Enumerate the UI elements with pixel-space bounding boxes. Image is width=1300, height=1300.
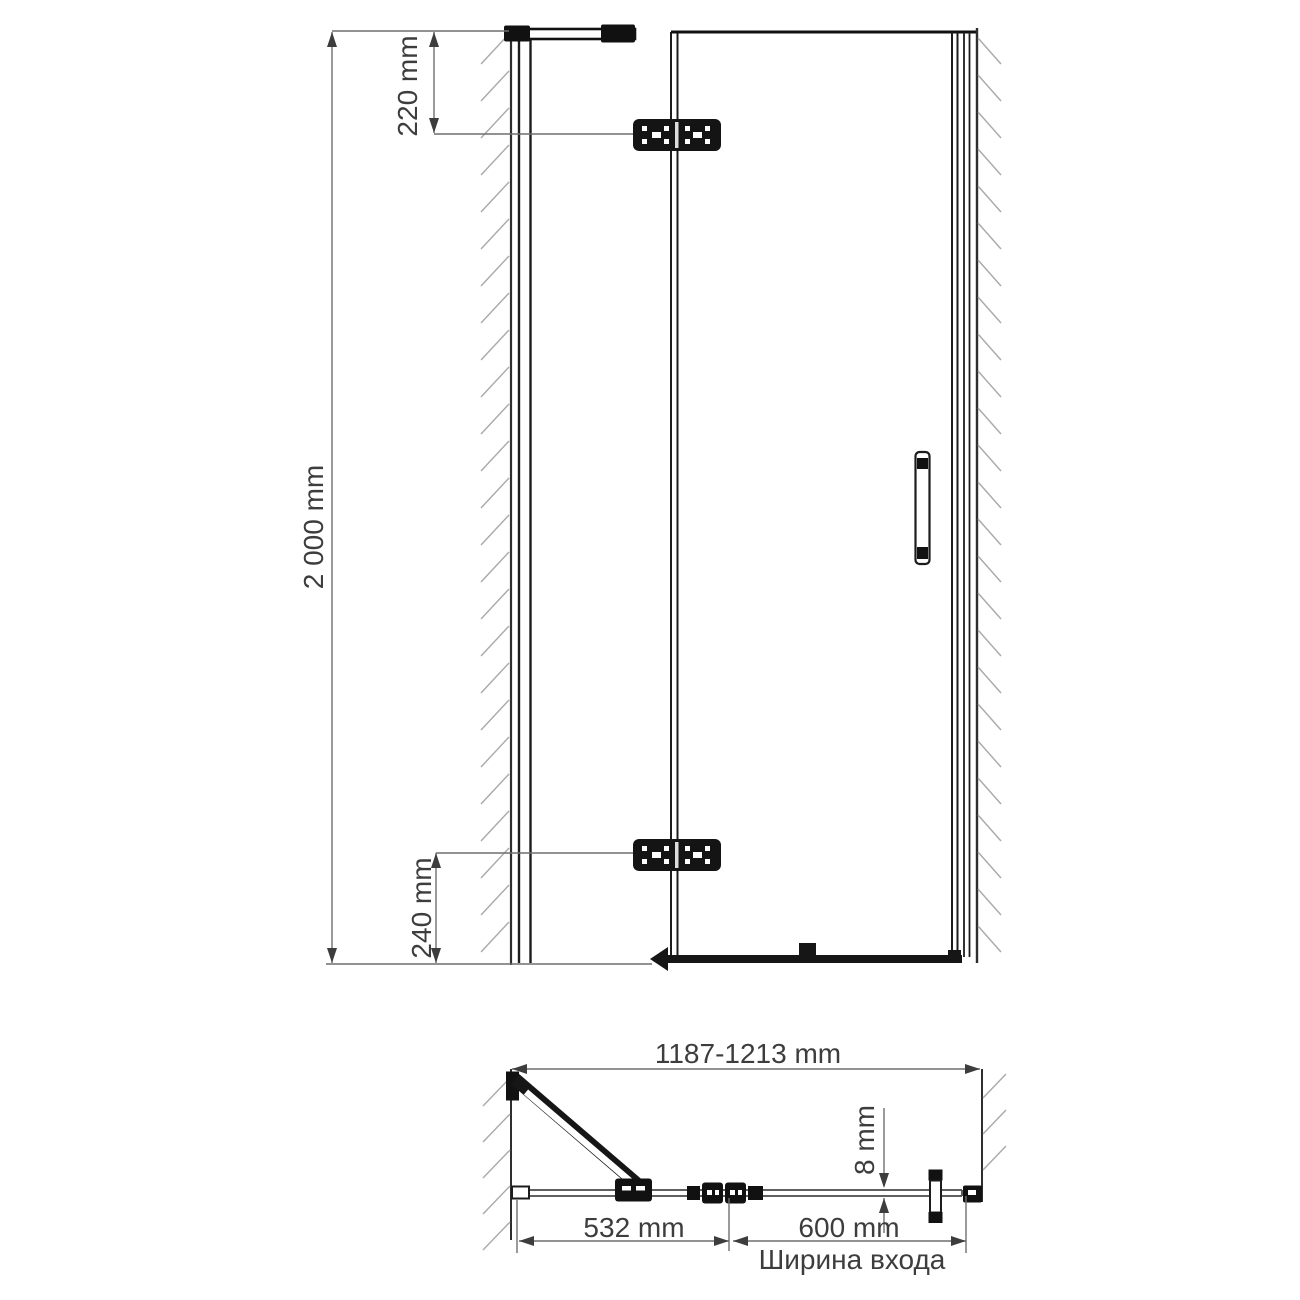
bottom-hinge-offset-label: 240 mm	[406, 857, 437, 958]
fixed-panel-wall-profile	[519, 30, 531, 963]
fixed-panel-width-label: 532 mm	[583, 1212, 684, 1243]
hinge-axis-edges	[671, 32, 678, 956]
glass-thickness-label: 8 mm	[849, 1105, 880, 1175]
front-right-wall	[964, 28, 1001, 963]
plan-right-wall-hatch	[983, 1074, 1006, 1170]
technical-drawing-canvas: 2 000 mm 220 mm 240 mm	[0, 0, 1300, 1300]
dimension-overall-height	[326, 31, 652, 964]
plan-left-wall-hatch	[483, 1078, 510, 1250]
overall-width-label: 1187-1213 mm	[655, 1038, 841, 1069]
plan-hinge	[687, 1183, 763, 1204]
bottom-hinge	[633, 839, 721, 871]
door-handle	[916, 452, 930, 564]
front-left-wall	[481, 26, 511, 965]
top-hinge	[633, 119, 721, 151]
plan-handle	[929, 1170, 943, 1224]
plan-support-bar	[506, 1072, 652, 1202]
shower-door-diagram: 2 000 mm 220 mm 240 mm	[0, 0, 1300, 1300]
dimension-bottom-hinge-offset	[431, 853, 633, 963]
plan-left-wall-profile	[512, 1187, 529, 1199]
bottom-rail	[650, 943, 962, 971]
top-support-bar	[504, 25, 635, 43]
entrance-width-caption: Ширина входа	[759, 1244, 946, 1275]
front-left-wall-hatch	[481, 34, 509, 952]
top-hinge-offset-label: 220 mm	[392, 35, 423, 136]
overall-height-label: 2 000 mm	[298, 465, 329, 590]
door-width-label: 600 mm	[798, 1212, 899, 1243]
door-panel	[671, 32, 978, 956]
front-right-wall-hatch	[978, 38, 1001, 952]
plan-right-wall	[982, 1069, 1006, 1202]
